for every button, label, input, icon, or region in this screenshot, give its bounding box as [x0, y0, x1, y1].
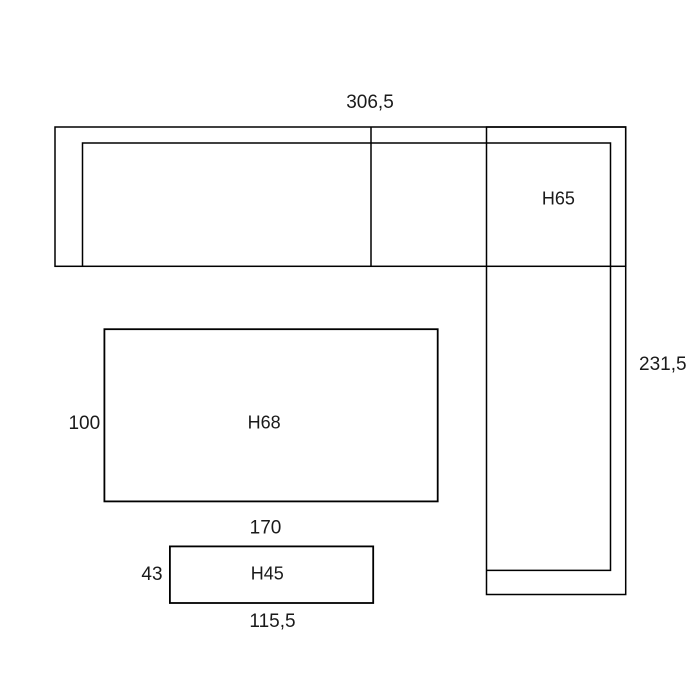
svg-text:306,5: 306,5 [346, 92, 394, 113]
svg-text:115,5: 115,5 [249, 611, 295, 632]
svg-text:H65: H65 [542, 188, 575, 208]
svg-text:231,5: 231,5 [639, 354, 687, 375]
svg-text:H45: H45 [251, 564, 284, 584]
svg-text:170: 170 [250, 517, 282, 538]
svg-text:43: 43 [141, 564, 162, 585]
svg-text:H68: H68 [248, 413, 281, 433]
svg-text:100: 100 [68, 413, 100, 434]
